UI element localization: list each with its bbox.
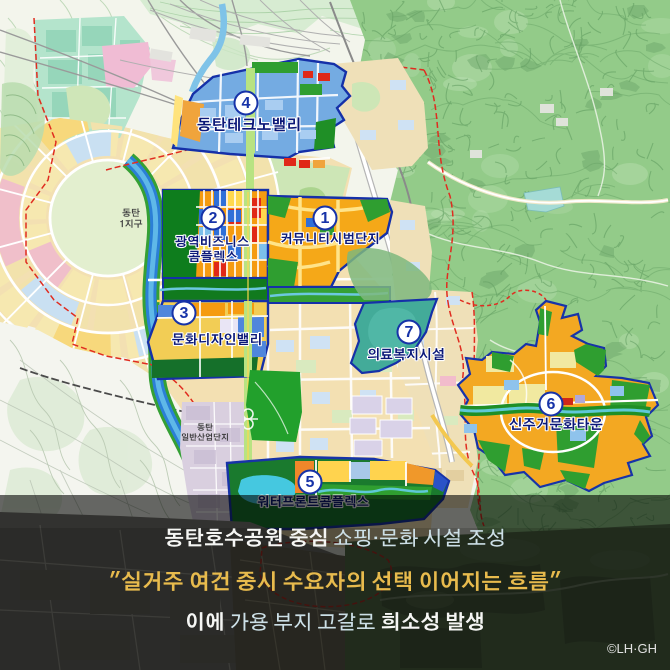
svg-text:4: 4 [242, 95, 251, 112]
svg-text:7: 7 [405, 324, 414, 341]
svg-text:3: 3 [180, 305, 189, 322]
svg-text:5: 5 [306, 474, 315, 491]
svg-text:1: 1 [321, 210, 330, 227]
svg-text:6: 6 [547, 396, 556, 413]
svg-text:©LH·GH: ©LH·GH [607, 641, 657, 656]
svg-text:2: 2 [209, 210, 218, 227]
